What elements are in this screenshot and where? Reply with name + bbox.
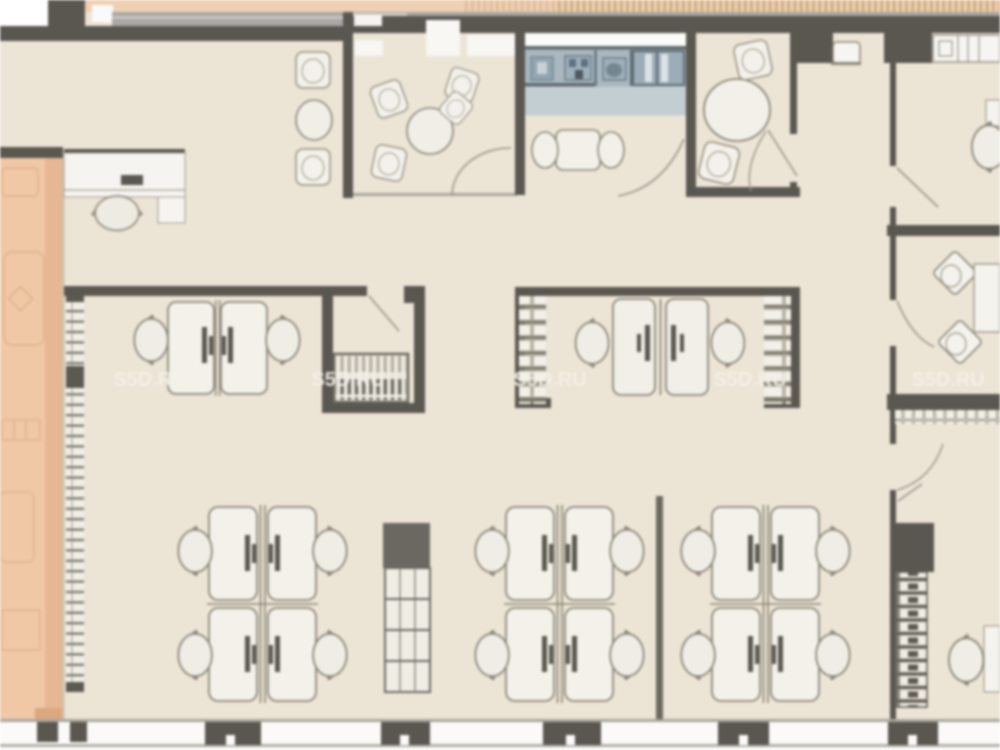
svg-text:S5D.RU: S5D.RU — [713, 369, 786, 391]
svg-text:S5D.RU: S5D.RU — [911, 369, 984, 391]
svg-text:S5D.RU: S5D.RU — [113, 369, 186, 391]
svg-text:S5D.RU: S5D.RU — [513, 369, 586, 391]
svg-text:S5D.RU: S5D.RU — [311, 369, 384, 391]
